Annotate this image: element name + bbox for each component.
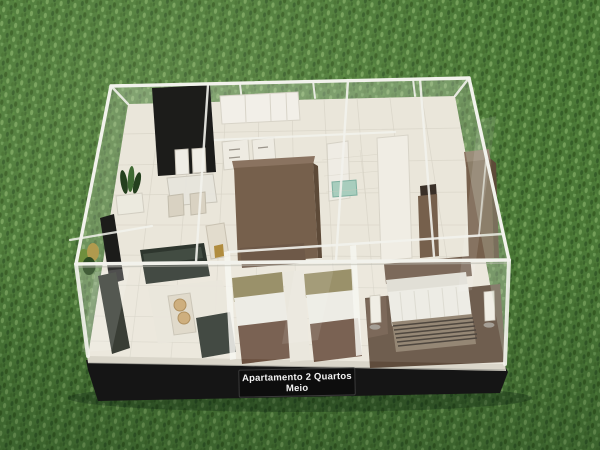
wardrobe-small (418, 194, 439, 258)
kitchen-upper-cabinets (220, 92, 300, 124)
name-plate: Apartamento 2 Quartos Meio (239, 368, 356, 397)
dining-chair-3 (168, 194, 184, 217)
dining-chair-back-1 (175, 149, 189, 175)
planter-box (116, 193, 144, 215)
model-label-line2: Meio (286, 383, 309, 394)
dining-chair-4 (190, 192, 206, 215)
photo-of-apartment-scale-model: Apartamento 2 Quartos Meio (0, 0, 600, 450)
armchair-gold-cushion (214, 244, 224, 258)
bathroom-green-glass (332, 180, 357, 197)
apartment-model: Apartamento 2 Quartos Meio (68, 78, 532, 412)
